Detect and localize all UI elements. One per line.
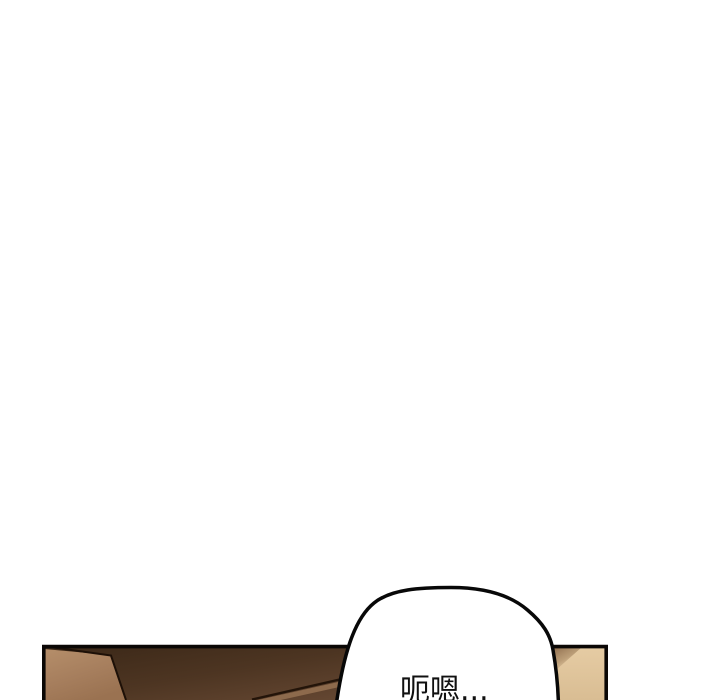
speech-bubble-text: 呃嗯... xyxy=(400,674,540,700)
comic-page: 呃嗯... xyxy=(0,0,720,700)
comic-panel xyxy=(0,0,720,700)
